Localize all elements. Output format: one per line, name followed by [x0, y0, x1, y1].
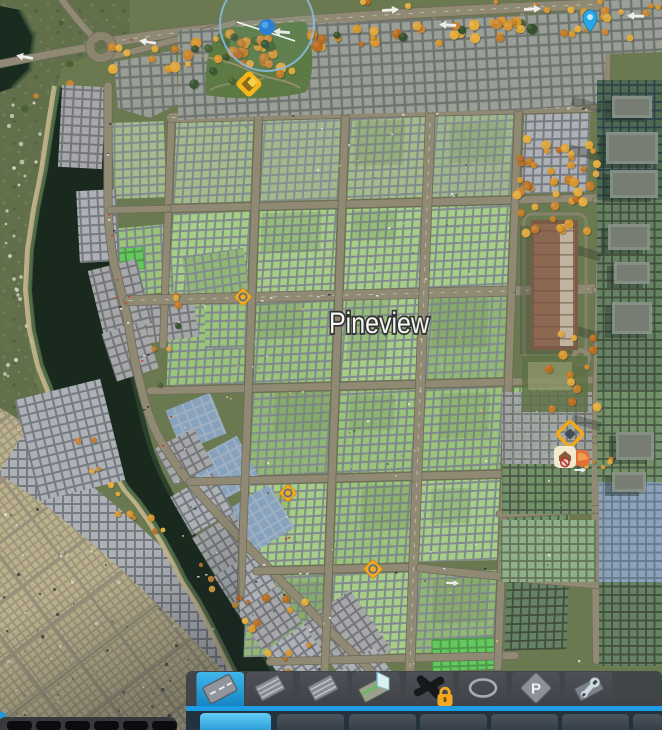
svg-text:P: P: [531, 681, 541, 698]
svg-text:Pineview: Pineview: [329, 307, 429, 340]
